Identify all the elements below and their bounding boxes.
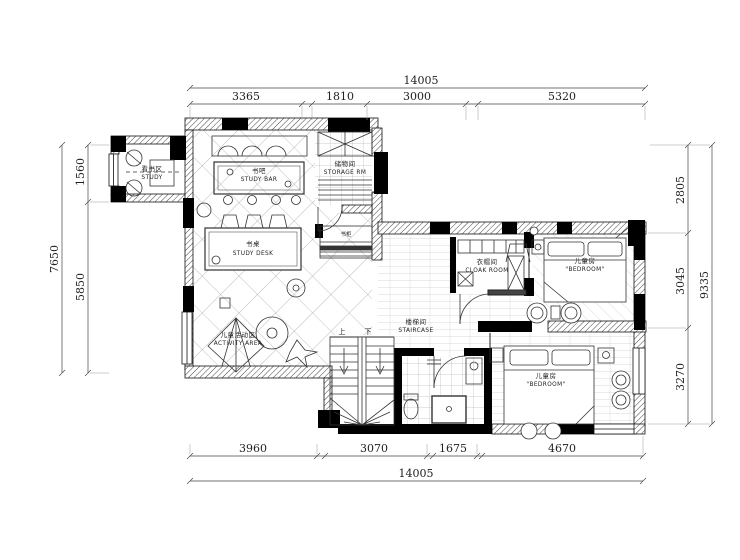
window-study-left	[182, 312, 192, 364]
label-bedroom-bottom-en: "BEDROOM"	[526, 382, 565, 388]
wall-lamp-icon	[530, 227, 538, 235]
label-activity-cn: 儿童活动区	[221, 330, 256, 339]
vanity-sink	[432, 396, 466, 423]
label-storage-en: STORAGE RM	[324, 170, 366, 176]
label-bedroom-top-cn: 儿童房	[575, 256, 596, 265]
floor-plan-canvas: 看书区 STUDY 书吧 STUDY BAR 储物间 STORAGE RM 书桌…	[0, 0, 740, 560]
stair-up-label: 上	[339, 327, 346, 336]
dim-right-total: 9335	[698, 271, 711, 299]
dim-right-seg-2: 3270	[674, 363, 687, 391]
stair-down-label: 下	[365, 328, 372, 336]
label-study-bar-en: STUDY BAR	[241, 177, 278, 183]
window-right-wall	[633, 348, 645, 394]
label-bookcase-cn: 书柜	[340, 230, 352, 238]
dim-bottom-seg-3: 4670	[548, 442, 576, 455]
dim-right-seg-0: 2805	[674, 176, 687, 204]
dim-top-seg-1: 1810	[326, 90, 354, 103]
label-study-desk-en: STUDY DESK	[233, 251, 274, 257]
dim-left-seg-0: 1560	[74, 158, 87, 186]
label-staircase-cn: 楼梯间	[406, 317, 427, 326]
window-bottom	[594, 424, 634, 434]
window-nook-left	[109, 154, 118, 186]
floor-plan-drawing: 看书区 STUDY 书吧 STUDY BAR 储物间 STORAGE RM 书桌…	[0, 0, 740, 560]
dim-bottom-seg-0: 3960	[239, 442, 267, 455]
dim-right-seg-1: 3045	[674, 267, 687, 295]
dim-top-seg-0: 3365	[232, 90, 260, 103]
dim-bottom-seg-1: 3070	[360, 442, 388, 455]
dim-bottom-total: 14005	[399, 467, 434, 480]
label-storage-cn: 储物间	[335, 159, 356, 168]
label-cloak-en: CLOAK ROOM	[465, 268, 508, 274]
label-study-nook-en: STUDY	[141, 175, 162, 181]
study-desk-table	[205, 228, 301, 270]
dim-left-seg-1: 5850	[74, 273, 87, 301]
label-activity-en: ACTIVITY AREA	[214, 341, 263, 347]
label-bedroom-bottom-cn: 儿童房	[536, 371, 557, 380]
label-study-desk-cn: 书桌	[246, 239, 260, 248]
label-study-bar-cn: 书吧	[252, 166, 266, 175]
dim-top-seg-2: 3000	[403, 90, 431, 103]
dim-top-seg-3: 5320	[548, 90, 576, 103]
label-cloak-cn: 衣帽间	[477, 257, 498, 266]
dim-left-total: 7650	[48, 245, 61, 273]
label-staircase-en: STAIRCASE	[398, 328, 433, 334]
dim-bottom-seg-2: 1675	[439, 442, 467, 455]
dim-top-total: 14005	[404, 74, 439, 87]
label-study-nook-cn: 看书区	[142, 164, 163, 173]
label-bedroom-top-en: "BEDROOM"	[565, 267, 604, 273]
